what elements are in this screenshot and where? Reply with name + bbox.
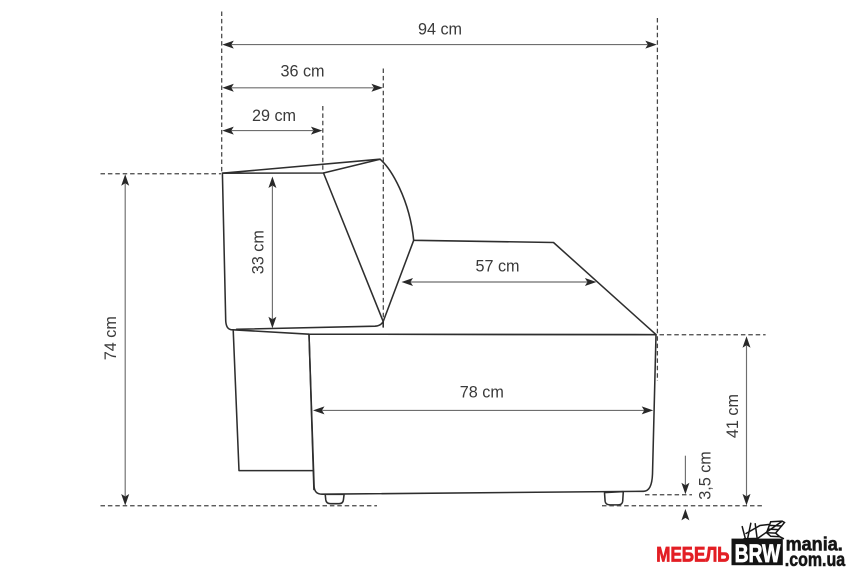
svg-text:.com.ua: .com.ua xyxy=(785,550,846,570)
svg-text:78 cm: 78 cm xyxy=(460,384,504,402)
svg-text:3,5 cm: 3,5 cm xyxy=(697,451,715,500)
svg-text:57 cm: 57 cm xyxy=(475,258,519,276)
svg-text:41 cm: 41 cm xyxy=(724,394,742,438)
svg-text:33 cm: 33 cm xyxy=(249,230,267,274)
svg-text:BRW: BRW xyxy=(735,540,781,568)
svg-text:МЕБЕЛЬ: МЕБЕЛЬ xyxy=(656,542,729,566)
svg-text:29 cm: 29 cm xyxy=(252,107,296,125)
svg-text:94 cm: 94 cm xyxy=(418,21,462,39)
svg-text:36 cm: 36 cm xyxy=(280,63,324,81)
svg-text:74 cm: 74 cm xyxy=(102,316,120,360)
